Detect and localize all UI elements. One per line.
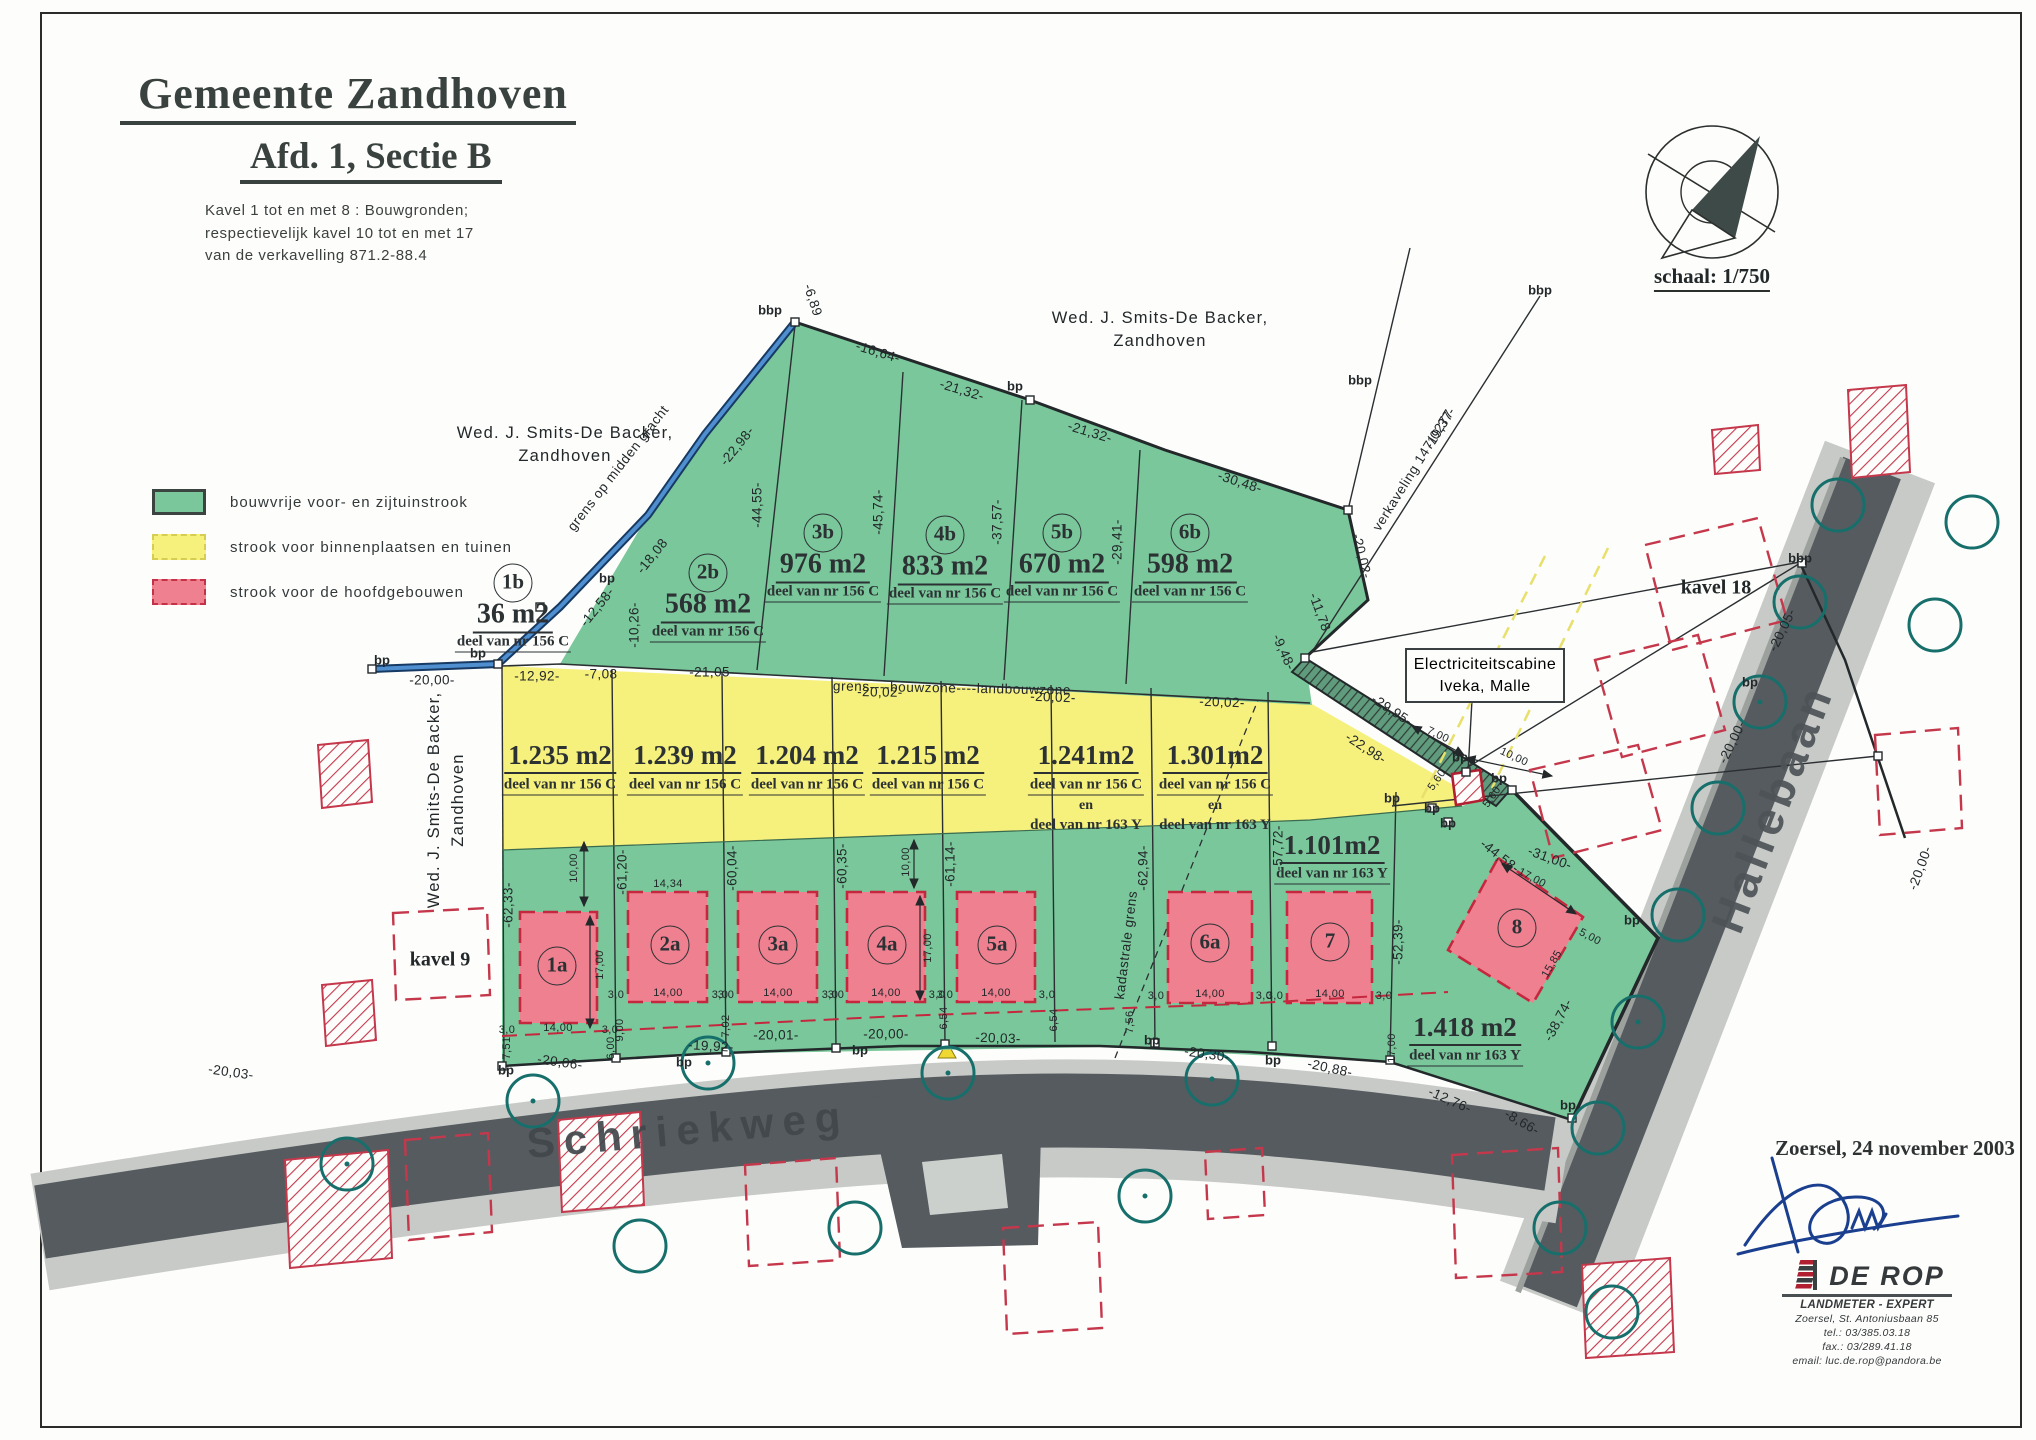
boundary-point-label: bp xyxy=(1440,816,1456,831)
parcel-ref-en: en xyxy=(1079,798,1093,814)
boundary-point-label: bbp xyxy=(1528,283,1552,298)
parcel-id-1a: 1a xyxy=(538,947,577,986)
dim-label: 7,56 xyxy=(1124,1010,1136,1033)
parcel-area: 1.101m2 xyxy=(1280,830,1385,864)
dim-label: 17,00 xyxy=(594,950,606,980)
dim-label: 14,00 xyxy=(1195,988,1225,1000)
parcel-ref: deel van nr 156 C xyxy=(1157,777,1273,796)
parcel-ref: deel van nr 156 C xyxy=(502,777,618,796)
parcel-area: 1.301m2 xyxy=(1163,740,1268,774)
boundary-point-label: bp xyxy=(1624,913,1640,928)
parcel-ref: deel van nr 163 Y xyxy=(1028,817,1144,835)
dim-label: -44,55- xyxy=(750,482,765,528)
dim-label: 6,54 xyxy=(938,1006,950,1029)
boundary-point-label: bp xyxy=(1452,750,1468,765)
parcel-id-8: 8 xyxy=(1498,909,1537,948)
legend-swatch-red xyxy=(152,579,206,605)
owner-label-vertical: Zandhoven xyxy=(447,753,469,846)
traffic-island xyxy=(922,1154,1008,1215)
legend-item-green: bouwvrije voor- en zijtuinstrook xyxy=(152,488,512,516)
dim-label: -60,04- xyxy=(725,845,740,891)
dim-label: -10,26- xyxy=(627,602,642,648)
page-subtitle: Afd. 1, Sectie B xyxy=(240,135,502,184)
dim-label: -20,01- xyxy=(753,1028,799,1043)
title-note: Kavel 1 tot en met 8 : Bouwgronden; resp… xyxy=(205,200,640,268)
firm-logo-icon xyxy=(1789,1258,1823,1292)
parcel-ref: deel van nr 156 C xyxy=(455,634,571,653)
cadastral-plan-sheet: Gemeente Zandhoven Afd. 1, Sectie B Kave… xyxy=(0,0,2036,1440)
parcel-id-4a: 4a xyxy=(868,926,907,965)
dim-label: 14,00 xyxy=(1315,988,1345,1000)
dim-label: -7,08 xyxy=(585,667,618,682)
parcel-area: 1.239 m2 xyxy=(629,740,741,774)
dim-label: -20,03- xyxy=(975,1030,1021,1047)
dim-label: -37,57- xyxy=(990,499,1005,545)
dim-label: 3,0 xyxy=(608,989,625,1001)
dim-label: 14,00 xyxy=(763,987,793,999)
boundary-point-label: bp xyxy=(374,653,390,668)
parcel-id-6a: 6a xyxy=(1191,924,1230,963)
boundary-point-label: bp xyxy=(852,1043,868,1058)
dim-label: 6,54 xyxy=(1048,1008,1060,1031)
legend-item-red: strook voor de hoofdgebouwen xyxy=(152,578,512,606)
parcel-ref: deel van nr 163 Y xyxy=(1274,866,1390,885)
parcel-id-2a: 2a xyxy=(651,926,690,965)
boundary-point-label: bbp xyxy=(1788,551,1812,566)
firm-subtitle: LANDMETER - EXPERT xyxy=(1782,1299,1952,1311)
dim-label: 10,00 xyxy=(900,847,912,877)
legend: bouwvrije voor- en zijtuinstrook strook … xyxy=(152,488,512,623)
boundary-point-label: bp xyxy=(1491,771,1507,786)
parcel-ref-en: en xyxy=(1208,798,1222,814)
dim-label: 14,34 xyxy=(653,878,683,890)
dim-label: -60,35- xyxy=(835,843,850,889)
boundary-point-label: bp xyxy=(1384,791,1400,806)
firm-name: DE ROP xyxy=(1829,1261,1945,1292)
owner-label-vertical: Wed. J. Smits-De Backer, xyxy=(423,692,445,908)
parcel-id-2b: 2b xyxy=(689,554,728,593)
firm-tel: tel.: 03/385.03.18 xyxy=(1782,1327,1952,1339)
dim-label: 3,0 xyxy=(1267,990,1284,1002)
title-block: Gemeente Zandhoven Afd. 1, Sectie B Kave… xyxy=(120,68,640,268)
parcel-ref: deel van nr 156 C xyxy=(650,624,766,643)
dim-label: -45,74- xyxy=(871,489,886,535)
dim-label: 14,00 xyxy=(981,987,1011,999)
dim-label: 3,0 xyxy=(1376,990,1393,1002)
parcel-ref: deel van nr 156 C xyxy=(1132,584,1248,603)
boundary-point-label: bp xyxy=(599,571,615,586)
boundary-point-label: bp xyxy=(1560,1098,1576,1113)
parcel-area: 568 m2 xyxy=(661,589,755,624)
dim-label: 3,0 xyxy=(828,989,845,1001)
dim-label: -12,92- xyxy=(514,669,560,684)
electricity-cabin-label: Electriciteitscabine Iveka, Malle xyxy=(1405,648,1565,703)
legend-item-yellow: strook voor binnenplaatsen en tuinen xyxy=(152,533,512,561)
owner-label: Zandhoven xyxy=(1113,330,1206,352)
dim-label: 3,0 xyxy=(1039,989,1056,1001)
dim-label: -20,00- xyxy=(863,1027,909,1042)
parcel-area: 1.241m2 xyxy=(1034,740,1139,774)
dim-label: -62,33- xyxy=(501,882,516,928)
parcel-ref: deel van nr 156 C xyxy=(887,586,1003,605)
parcel-area: 1.235 m2 xyxy=(504,740,616,774)
dim-label: 10,00 xyxy=(568,853,580,883)
dim-label: -61,20- xyxy=(615,849,630,895)
boundary-point-label: bp xyxy=(1144,1033,1160,1048)
dim-label: 7,51 xyxy=(501,1036,513,1059)
dim-label: -62,94- xyxy=(1136,845,1151,891)
firm-email: email: luc.de.rop@pandora.be xyxy=(1782,1355,1952,1367)
parcel-area: 36 m2 xyxy=(473,599,553,634)
boundary-point-label: bp xyxy=(1007,379,1023,394)
owner-label: Wed. J. Smits-De Backer, xyxy=(1052,307,1268,329)
parcel-ref: deel van nr 163 Y xyxy=(1157,817,1273,835)
dim-label: -21,05- xyxy=(689,665,735,680)
parcel-id-4b: 4b xyxy=(926,516,965,555)
parcel-id-5b: 5b xyxy=(1043,514,1082,553)
kavel-9-label: kavel 9 xyxy=(410,949,471,972)
parcel-area: 1.215 m2 xyxy=(872,740,984,774)
scale-label: schaal: 1/750 xyxy=(1654,264,1770,292)
firm-fax: fax.: 03/289.41.18 xyxy=(1782,1341,1952,1353)
parcel-id-3a: 3a xyxy=(759,926,798,965)
parcel-area: 976 m2 xyxy=(776,549,870,584)
dim-label: 3,0 xyxy=(718,989,735,1001)
parcel-area: 598 m2 xyxy=(1143,549,1237,584)
parcel-id-5a: 5a xyxy=(978,926,1017,965)
parcel-area: 833 m2 xyxy=(898,551,992,586)
dim-label: 3,0 xyxy=(937,989,954,1001)
page-title: Gemeente Zandhoven xyxy=(120,68,576,125)
dim-label: 3,0 xyxy=(1148,990,1165,1002)
boundary-point-label: bbp xyxy=(758,303,782,318)
dim-label: 14,00 xyxy=(543,1022,573,1034)
dim-label: 7,02 xyxy=(720,1014,732,1037)
compass-rose xyxy=(1646,126,1778,258)
dim-label: 6,00 xyxy=(605,1036,617,1059)
parcel-ref: deel van nr 163 Y xyxy=(1407,1048,1523,1067)
parcel-id-1b: 1b xyxy=(494,564,533,603)
parcel-ref: deel van nr 156 C xyxy=(765,584,881,603)
dim-label: -19,92- xyxy=(688,1037,734,1054)
parcel-id-6b: 6b xyxy=(1171,514,1210,553)
dim-label: -61,14- xyxy=(943,841,958,887)
kavel-18-label: kavel 18 xyxy=(1681,577,1752,600)
boundary-point-label: bp xyxy=(1265,1053,1281,1068)
dim-label: 17,00 xyxy=(922,933,934,963)
boundary-point-label: bbp xyxy=(1348,373,1372,388)
dim-label: 17,00 xyxy=(1386,1033,1398,1063)
surveyor-block: DE ROP LANDMETER - EXPERT Zoersel, St. A… xyxy=(1782,1258,1952,1367)
parcel-area: 670 m2 xyxy=(1015,549,1109,584)
signature xyxy=(1738,1158,1958,1254)
dim-label: -52,39- xyxy=(1391,919,1406,965)
parcel-id-7: 7 xyxy=(1311,923,1350,962)
dim-label: -29,41- xyxy=(1110,519,1125,565)
firm-address: Zoersel, St. Antoniusbaan 85 xyxy=(1782,1313,1952,1325)
boundary-point-label: bp xyxy=(1424,801,1440,816)
boundary-point-label: bp xyxy=(1742,675,1758,690)
legend-swatch-yellow xyxy=(152,534,206,560)
parcel-ref: deel van nr 156 C xyxy=(870,777,986,796)
dim-label: -20,00- xyxy=(409,673,455,688)
parcel-ref: deel van nr 156 C xyxy=(1028,777,1144,796)
legend-swatch-green xyxy=(152,489,206,515)
parcel-ref: deel van nr 156 C xyxy=(749,777,865,796)
dim-label: 14,00 xyxy=(653,987,683,999)
dim-label: 3,0 xyxy=(499,1024,516,1036)
boundary-point-label: bp xyxy=(498,1063,514,1078)
dim-label: -20,02- xyxy=(1199,694,1245,711)
owner-label: Zandhoven xyxy=(518,445,611,467)
parcel-ref: deel van nr 156 C xyxy=(627,777,743,796)
dim-label: 14,00 xyxy=(871,987,901,999)
parcel-id-3b: 3b xyxy=(804,514,843,553)
parcel-area: 1.418 m2 xyxy=(1409,1012,1521,1046)
boundary-point-label: bp xyxy=(676,1055,692,1070)
date-label: Zoersel, 24 november 2003 xyxy=(1775,1136,2015,1161)
parcel-area: 1.204 m2 xyxy=(751,740,863,774)
parcel-ref: deel van nr 156 C xyxy=(1004,584,1120,603)
